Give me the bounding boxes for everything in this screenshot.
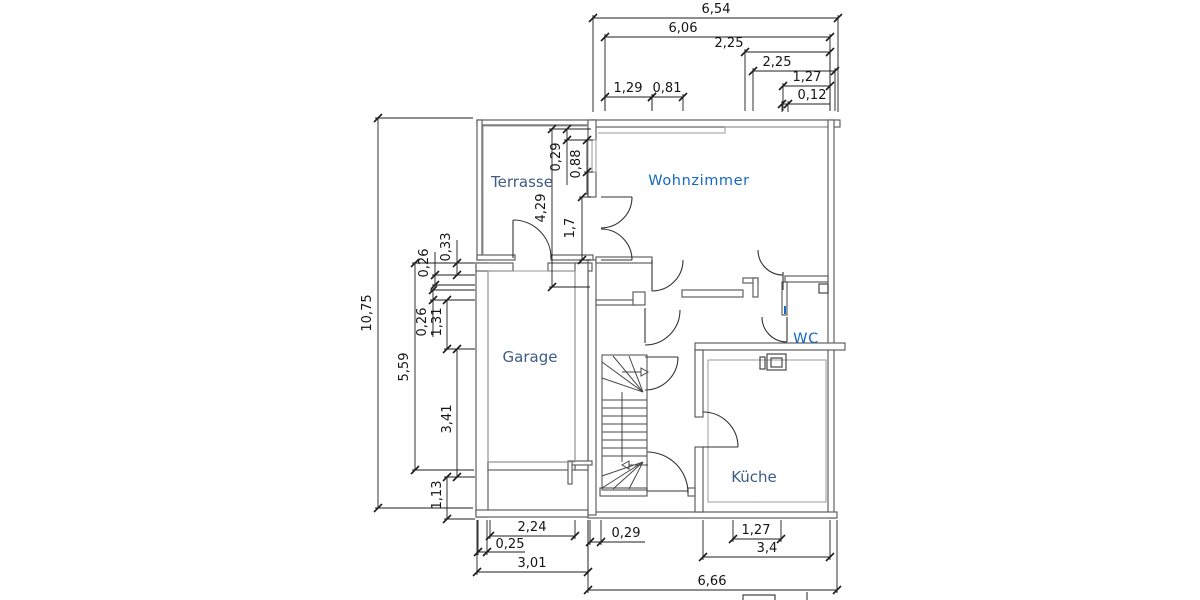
garage-top-wall-left (476, 263, 513, 271)
dimension-label: 0,26 (415, 308, 430, 337)
stairwell-door-swing (645, 357, 678, 390)
kitchen-left-wall-lower (695, 447, 703, 512)
kitchen-sink-icon (760, 357, 765, 369)
garage-front-wall (476, 510, 588, 517)
house-left-wall-lower (588, 260, 596, 515)
terrasse-bottom-wall-right (551, 255, 593, 260)
dimension-label: 0,12 (798, 88, 827, 103)
terrasse-door-swing (513, 220, 551, 258)
dimension-label: 0,25 (496, 537, 525, 552)
wc-door-swing (762, 317, 787, 342)
wc-vent-icon (819, 284, 828, 293)
floor-plan-canvas: 6,546,062,252,251,270,121,290,8110,750,3… (0, 0, 1200, 600)
dimension-label: 1,29 (614, 81, 643, 96)
room-label-wc: WC (793, 331, 819, 347)
stair-walk-arrow-up (622, 368, 648, 376)
dimension-14: 3,41 (440, 345, 475, 481)
dimension-12: 0,26 (415, 286, 475, 337)
livingroom-top-lining (598, 127, 827, 133)
dimension-label: 2,24 (518, 520, 547, 535)
dimension-label: 1,31 (430, 308, 445, 337)
dimension-label: 1,27 (793, 70, 822, 85)
dimension-label: 3,01 (518, 556, 547, 571)
dimension-label: 4,29 (534, 194, 549, 223)
dimension-annotations: 6,546,062,252,251,270,121,290,8110,750,3… (360, 2, 842, 594)
dimension-label: 6,06 (669, 21, 698, 36)
dimension-label: 1,27 (742, 523, 771, 538)
dimension-label: 1,13 (430, 481, 445, 510)
dimension-11: 5,59 (397, 259, 474, 474)
terrasse-bottom-wall-left (477, 255, 515, 260)
dimension-label: 1,7 (563, 218, 578, 239)
kitchen-stove-inner-icon (771, 358, 782, 367)
dimension-9: 0,33 (439, 233, 475, 279)
dimension-label: 6,66 (698, 574, 727, 589)
stair-winders-top (602, 356, 643, 392)
hall-door-swing (758, 250, 783, 275)
terrasse-left-wall (477, 120, 482, 260)
dimension-13: 1,31 (430, 296, 475, 353)
stair-outline (602, 355, 647, 490)
dimension-label: 10,75 (360, 294, 375, 331)
dimension-label: 2,25 (715, 36, 744, 51)
garage-right-wall (575, 263, 588, 470)
dimension-label: 0,29 (612, 526, 641, 541)
stair-walk-arrow-down (622, 461, 648, 469)
livingroom-door-swing (652, 260, 683, 291)
dimension-label: 3,41 (440, 405, 455, 434)
wc-top-wall (785, 276, 828, 282)
floor-plan-drawing: 6,546,062,252,251,270,121,290,8110,750,3… (0, 0, 1200, 600)
garage-lining (488, 271, 575, 462)
dimension-19: 1,7 (563, 193, 591, 264)
dimension-23: 0,29 (586, 520, 645, 546)
dimension-label: 0,88 (569, 150, 584, 179)
staircase (602, 355, 648, 490)
hall-top-wall (682, 290, 743, 297)
dimension-label: 6,54 (702, 2, 731, 17)
stair-door-swing (645, 310, 680, 345)
house-bottom-wall (588, 512, 837, 518)
dimension-6: 1,29 (601, 81, 656, 111)
kitchen-top-wall (695, 343, 845, 350)
bottom-partial-symbol (743, 595, 775, 600)
dimension-label: 0,29 (549, 143, 564, 172)
stair-treads (602, 400, 647, 456)
dimension-24: 1,27 (729, 520, 785, 543)
dimension-label: 5,59 (397, 353, 412, 382)
entrance-door-swing (647, 452, 688, 493)
stair-wall-notch (633, 292, 645, 305)
house-left-wall-mid (588, 172, 596, 197)
room-label-kueche: Küche (731, 468, 777, 486)
dimension-label: 3,4 (757, 541, 778, 556)
kitchen-stove-icon (767, 354, 786, 370)
kitchen-left-wall-upper (695, 350, 703, 417)
house-top-wall (593, 120, 840, 127)
hall-step-wall-b (753, 278, 758, 297)
stair-winders-bottom (602, 462, 643, 489)
garage-bottom-wall (488, 462, 575, 470)
garage-left-wall (476, 263, 488, 517)
dimension-label: 0,33 (439, 233, 454, 262)
entrance-niche-wall-b (568, 461, 572, 484)
room-label-wohnzimmer: Wohnzimmer (648, 173, 750, 189)
dimension-5: 0,12 (778, 88, 830, 112)
hall-bottom-stub (688, 488, 695, 496)
house-right-wall (828, 120, 834, 518)
room-label-garage: Garage (503, 348, 558, 366)
terrasse-top-wall (477, 120, 593, 125)
french-door-top-swing (601, 197, 632, 228)
hall-bottom-wall (600, 488, 647, 496)
dimension-label: 0,81 (653, 81, 682, 96)
room-label-terrasse: Terrasse (490, 173, 553, 191)
stair-top-wall (596, 300, 635, 305)
french-door-bottom-swing (601, 229, 632, 260)
dimension-7: 0,81 (648, 81, 687, 111)
dimension-label: 2,25 (763, 55, 792, 70)
